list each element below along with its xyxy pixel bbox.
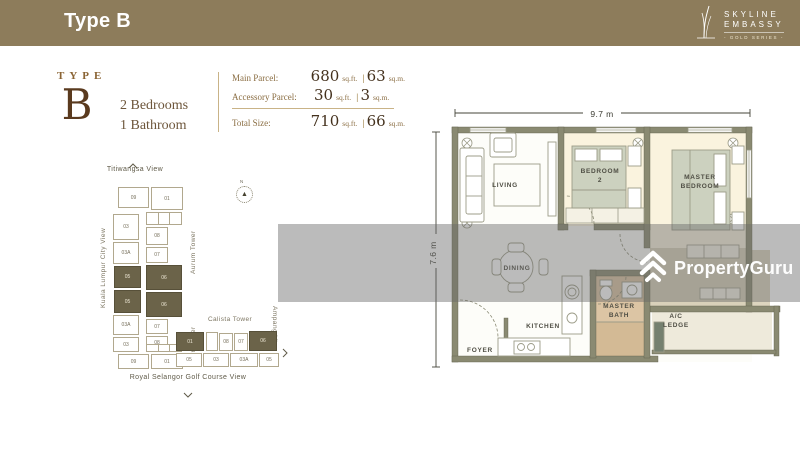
room-label-bedroom2-2: 2 <box>598 177 602 184</box>
room-label-ac-2: LEDGE <box>663 322 689 329</box>
watermark-logo: PropertyGuru <box>638 248 793 289</box>
nightstand <box>628 146 641 166</box>
room-label-master-2: BEDROOM <box>681 183 720 190</box>
nightstand <box>628 188 641 208</box>
room-label-master-1: MASTER <box>684 174 716 181</box>
nightstand <box>732 146 744 164</box>
watermark-text: PropertyGuru <box>674 258 793 279</box>
room-label-living: LIVING <box>492 182 518 189</box>
tv-console <box>548 142 556 216</box>
room-label-bedroom2-1: BEDROOM <box>581 168 620 175</box>
room-label-bath-2: BATH <box>609 312 629 319</box>
dim-width-label: 9.7 m <box>590 109 613 119</box>
propertyguru-chevron-icon <box>638 248 668 289</box>
room-label-bath-1: MASTER <box>603 303 635 310</box>
room-label-ac-1: A/C <box>669 313 682 320</box>
room-label-foyer: FOYER <box>467 347 493 354</box>
floor-plan-page: Type B SKYLINE EMBASSY - GOLD SERIES - T… <box>0 0 800 450</box>
room-label-kitchen: KITCHEN <box>526 323 560 330</box>
